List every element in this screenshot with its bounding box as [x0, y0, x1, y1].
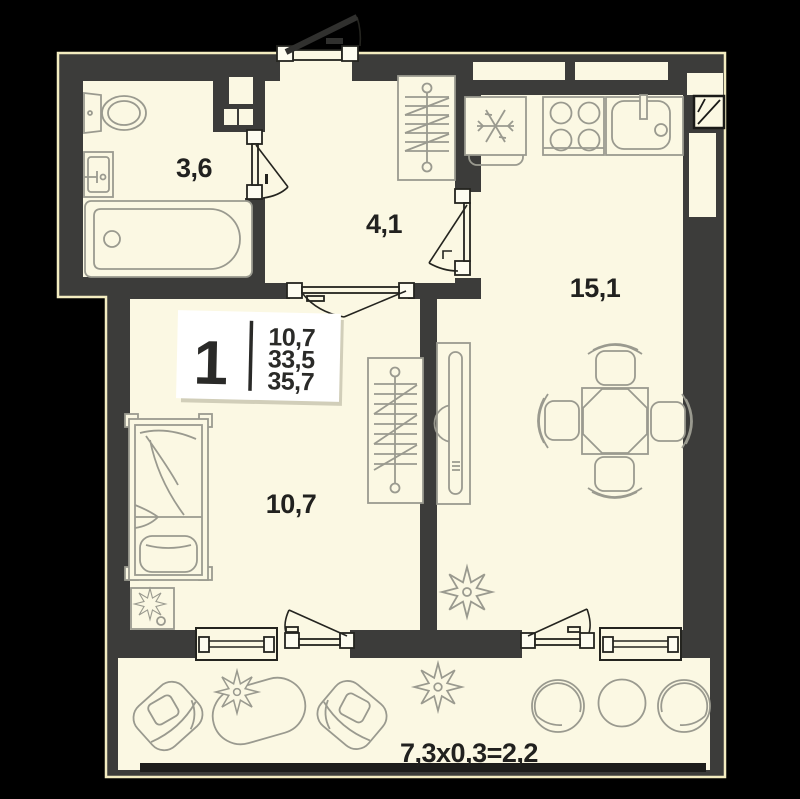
total-area-value: 35,7	[267, 367, 314, 396]
wall-notch	[687, 73, 723, 95]
right-shaft	[689, 133, 716, 217]
toilet-symbol	[84, 93, 146, 133]
bathroom-sink-symbol	[84, 152, 113, 197]
stove-symbol	[543, 97, 604, 155]
balcony-plant	[414, 663, 462, 711]
kitchen-window-1	[473, 62, 565, 80]
bed-symbol	[125, 414, 212, 580]
bedroom-balcony-window	[196, 628, 277, 660]
balcony-table	[599, 680, 646, 727]
plant-symbol-living	[442, 567, 492, 617]
rooms-count: 1	[193, 329, 229, 399]
balcony-chair-1	[532, 680, 584, 732]
balcony-rug-plant	[216, 671, 259, 714]
shaft-opening-small-2	[239, 109, 253, 125]
fridge-symbol	[465, 97, 526, 165]
dining-chair-top	[588, 344, 642, 385]
dining-chair-right	[651, 394, 692, 448]
hallway-area-label: 4,1	[366, 209, 403, 239]
living-balcony-window	[600, 628, 681, 660]
vent-shaft-block	[213, 55, 265, 132]
kitchen-living-area-label: 15,1	[570, 273, 621, 303]
kitchen-living-floor	[481, 95, 683, 630]
shaft-opening-small-1	[224, 109, 237, 125]
kitchen-window-2	[575, 62, 668, 80]
hall-wardrobe-symbol	[398, 76, 455, 180]
dining-chair-left	[538, 394, 579, 448]
floor-plan-image: 3,6 4,1	[0, 0, 800, 799]
bathtub-symbol	[85, 201, 252, 277]
balcony-formula-label: 7,3х0,3=2,2	[400, 738, 538, 768]
unit-info-card: 1 10,7 33,5 35,7	[176, 310, 344, 406]
bedroom-area-label: 10,7	[266, 489, 317, 519]
balcony-chair-2	[658, 680, 710, 732]
bedroom-plant-symbol	[131, 588, 174, 629]
tv-unit-symbol	[435, 343, 471, 504]
shaft-opening-large	[229, 77, 253, 104]
dining-chair-bottom	[588, 457, 642, 498]
kitchen-sink-symbol	[606, 95, 683, 155]
bathroom-area-label: 3,6	[176, 153, 213, 183]
bedroom-wardrobe-symbol	[368, 358, 423, 503]
